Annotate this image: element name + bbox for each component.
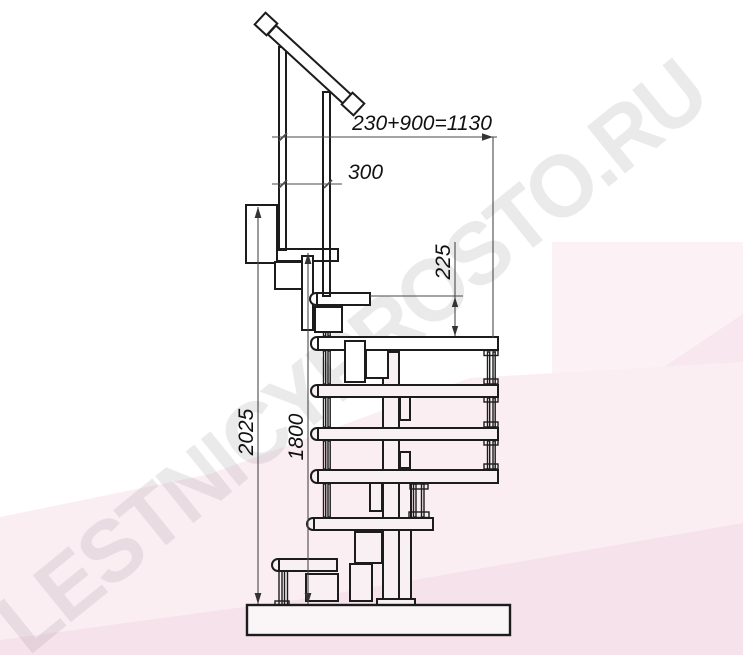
module-block xyxy=(345,341,365,382)
dimension-label: 230+900=1130 xyxy=(351,112,492,135)
module-block xyxy=(355,532,382,563)
staircase-blueprint: LESTNICYPROSTO.RU xyxy=(0,0,743,655)
drawing-canvas: LESTNICYPROSTO.RU xyxy=(0,0,743,655)
pole-lower-tube xyxy=(399,470,411,605)
module-block xyxy=(366,350,388,378)
dimension-label: 300 xyxy=(348,161,383,184)
pole-collar xyxy=(400,452,410,468)
module-block xyxy=(306,574,338,601)
dimension-label: 2025 xyxy=(235,408,258,456)
module-block xyxy=(315,307,342,332)
platform-second xyxy=(317,293,370,305)
base-plate xyxy=(247,605,510,635)
dimension-label: 225 xyxy=(432,244,455,280)
tread xyxy=(318,385,498,397)
wall-bracket xyxy=(246,205,277,263)
tread xyxy=(318,470,498,483)
module-block xyxy=(350,564,372,601)
module-block xyxy=(275,262,303,289)
tread xyxy=(314,518,433,530)
dimension-label: 1800 xyxy=(285,413,308,460)
tread xyxy=(318,428,498,440)
module-block xyxy=(370,483,382,511)
